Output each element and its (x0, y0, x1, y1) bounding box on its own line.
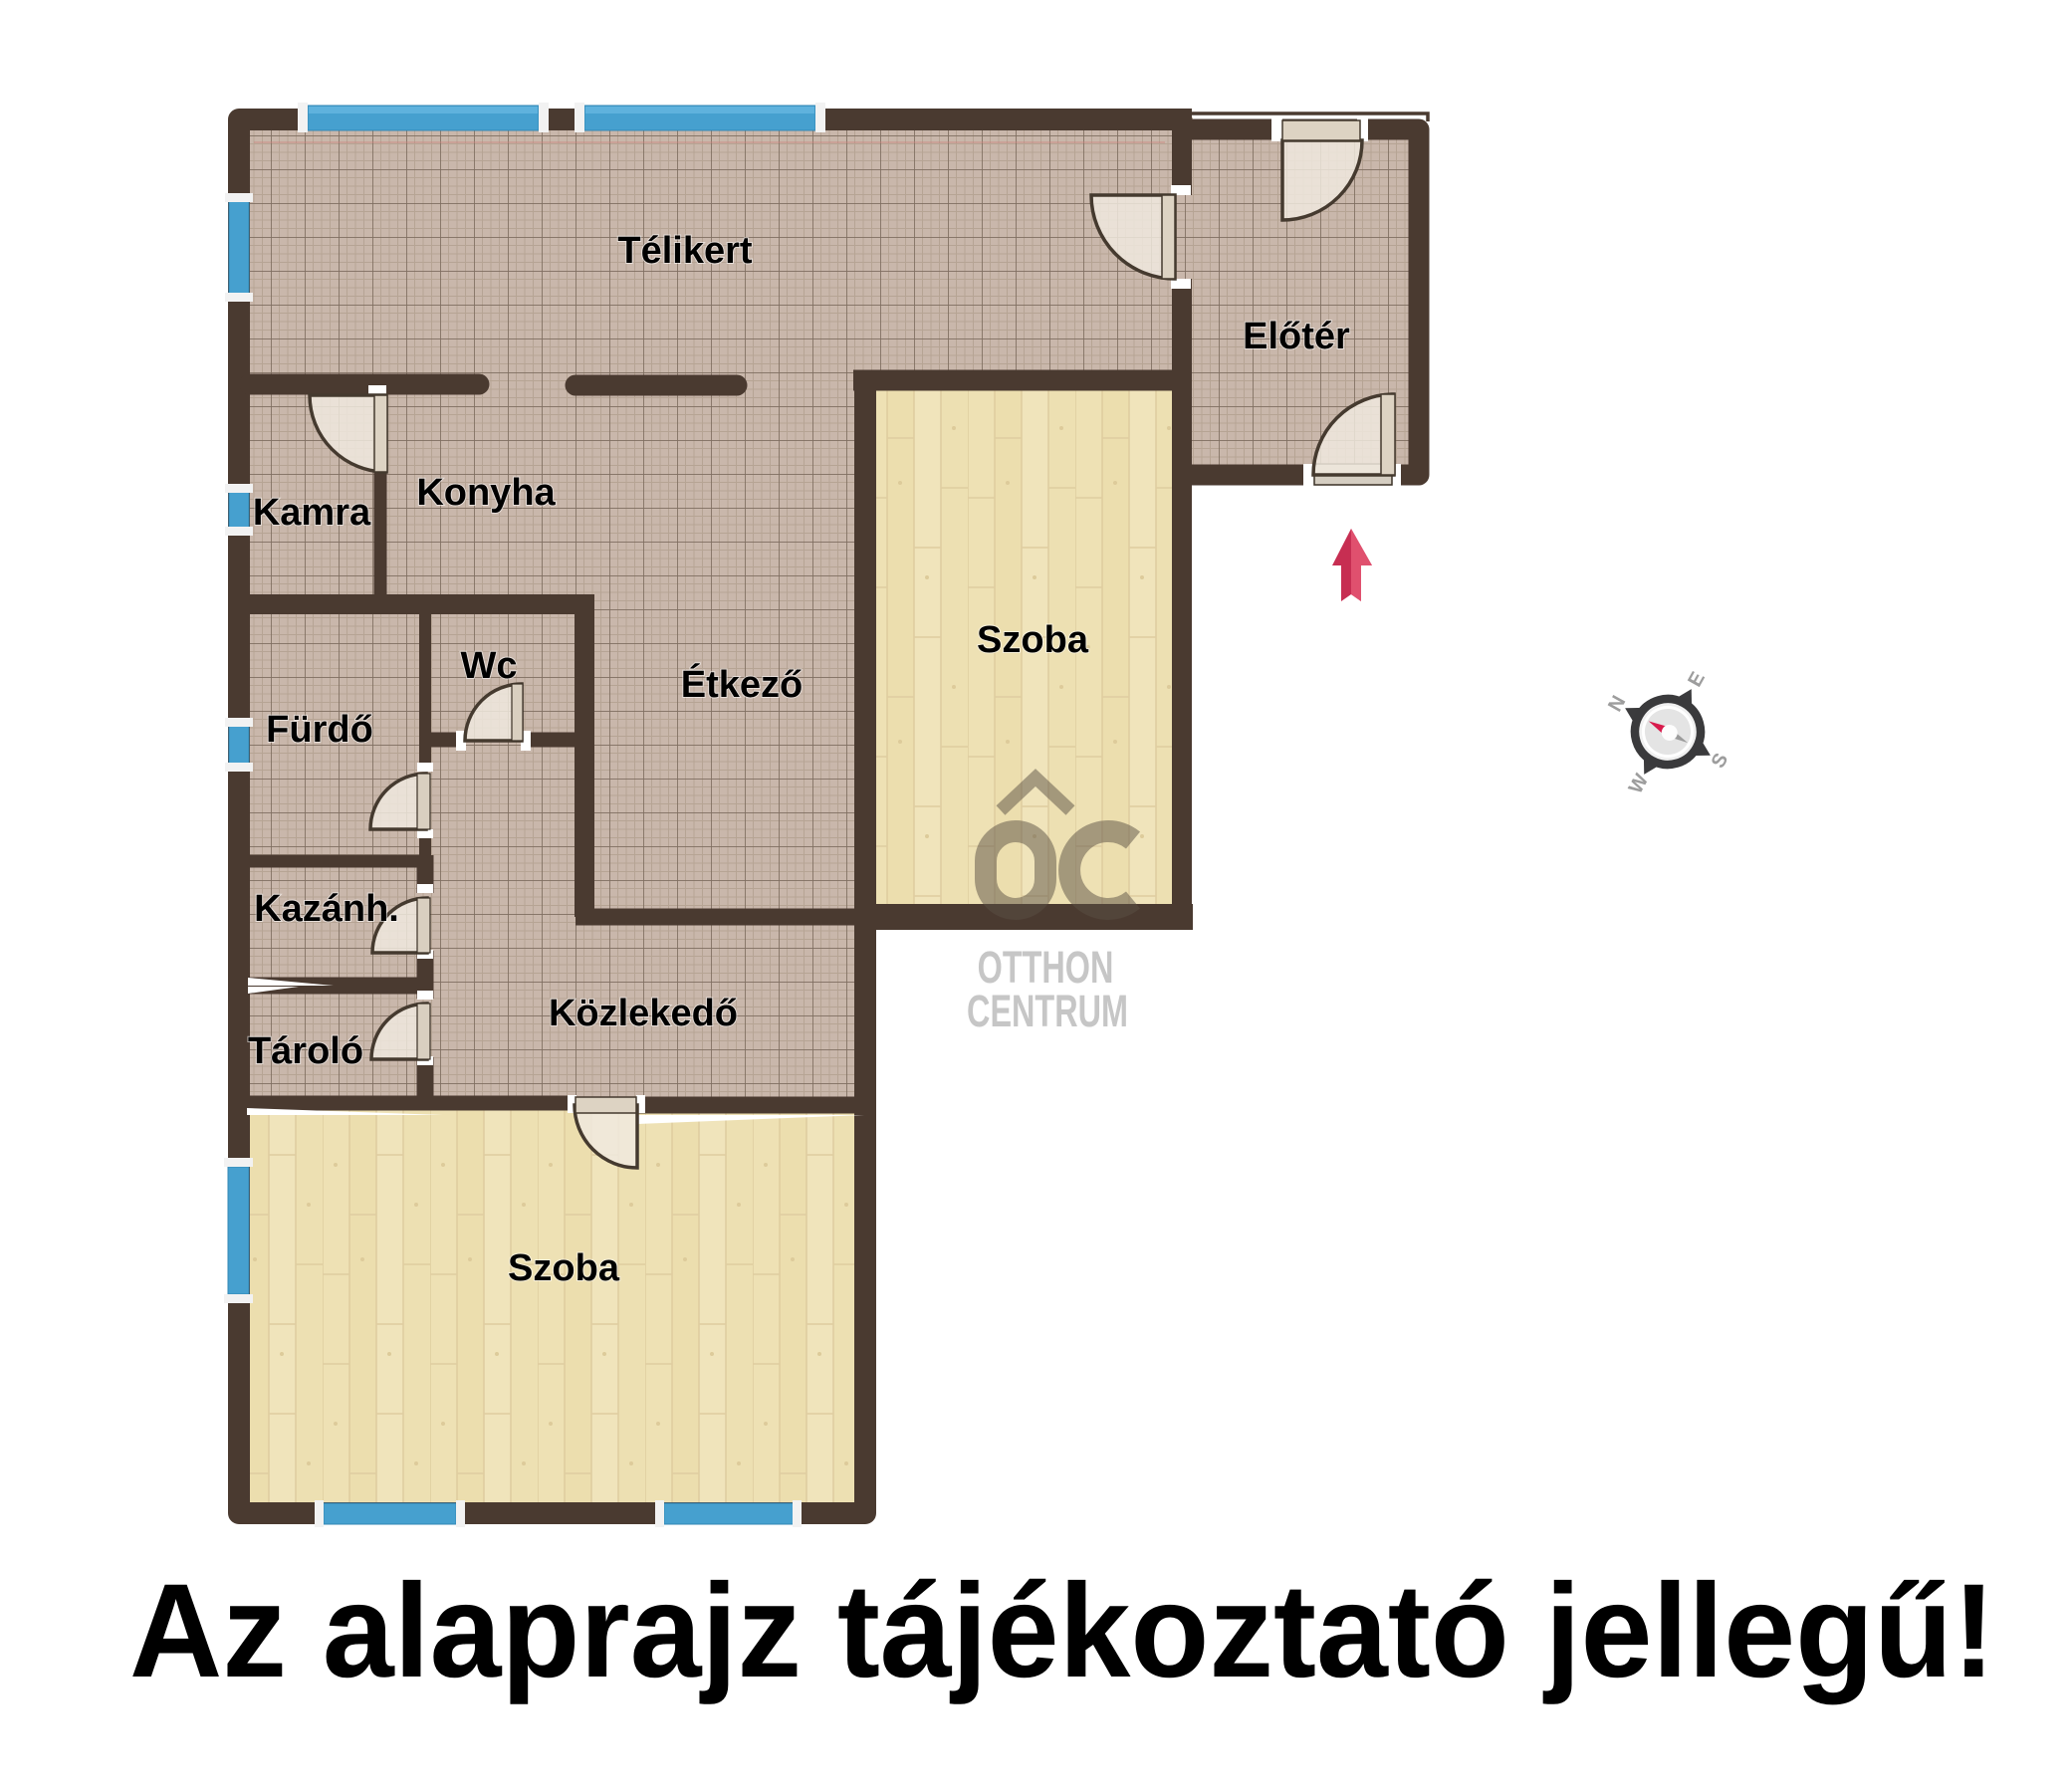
svg-text:Kazánh.: Kazánh. (254, 888, 399, 930)
svg-text:OTTHON: OTTHON (978, 944, 1114, 993)
svg-text:Szoba: Szoba (508, 1247, 620, 1289)
svg-text:Étkező: Étkező (681, 662, 803, 706)
svg-text:CENTRUM: CENTRUM (967, 988, 1128, 1036)
svg-text:Az alaprajz tájékoztató jelleg: Az alaprajz tájékoztató jellegű! (129, 1557, 1995, 1705)
svg-text:Szoba: Szoba (977, 619, 1089, 661)
svg-text:Fürdő: Fürdő (266, 709, 373, 751)
svg-text:Wc: Wc (461, 645, 518, 687)
svg-text:Télikert: Télikert (617, 230, 753, 272)
svg-text:Előtér: Előtér (1243, 316, 1350, 357)
svg-text:Tároló: Tároló (248, 1030, 363, 1072)
svg-text:Kamra: Kamra (253, 492, 371, 534)
svg-text:Közlekedő: Közlekedő (549, 993, 738, 1034)
svg-text:Konyha: Konyha (416, 472, 556, 514)
